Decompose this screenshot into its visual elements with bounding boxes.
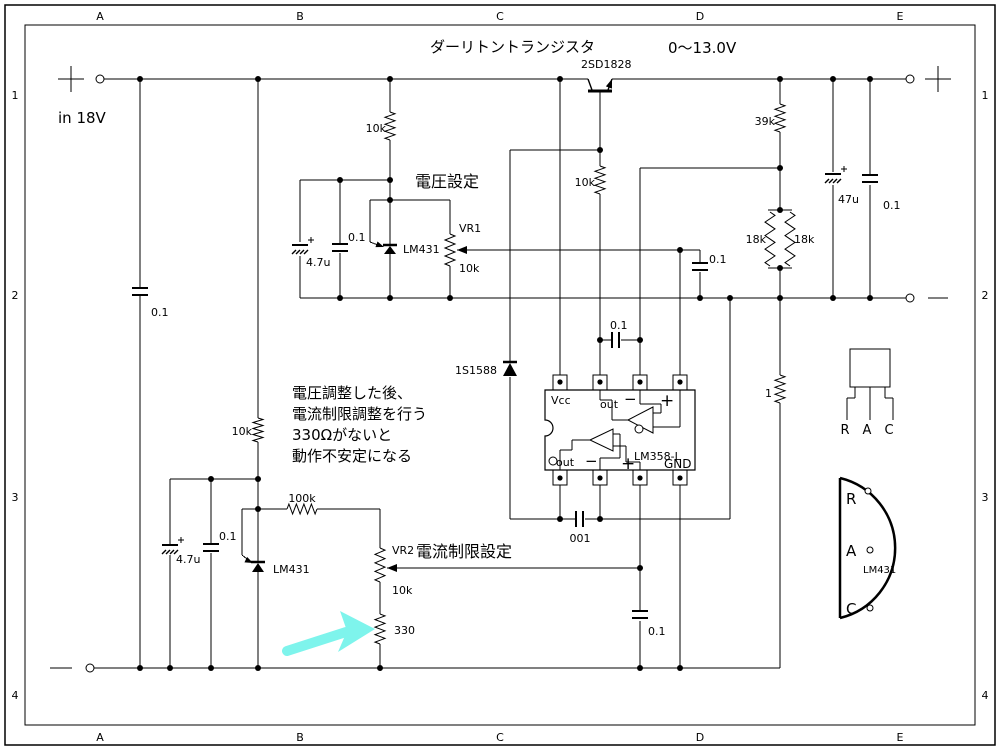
- cap-001: [576, 511, 583, 527]
- label-note-3: 330Ωがないと: [292, 426, 392, 444]
- grid-col-label-B-top: B: [296, 10, 304, 23]
- label-title: ダーリトントランジスタ: [430, 38, 595, 56]
- label-pkg-c: C: [884, 423, 893, 438]
- label-c-ref-01: 0.1: [648, 625, 666, 638]
- label-dpkg-c: C: [846, 600, 856, 618]
- diode-1s1588: [503, 362, 517, 376]
- grid-row-label-3-right: 3: [982, 491, 989, 504]
- label-ic-vcc: Vcc: [551, 394, 571, 407]
- lm431-vset: [375, 241, 397, 254]
- label-d-1s1588: 1S1588: [455, 364, 497, 377]
- grid-col-label-A-top: A: [96, 10, 104, 23]
- cap-vset-4.7u: [292, 237, 314, 254]
- cap-out-0.1: [862, 175, 878, 182]
- junction-ring: [635, 425, 643, 433]
- vr2-wiper: [387, 564, 397, 572]
- label-ic-plus-top: +: [660, 391, 674, 411]
- resistor-330: [375, 614, 385, 644]
- input-plus-terminal: [96, 75, 104, 83]
- label-r-39k: 39k: [755, 115, 776, 128]
- schematic-canvas: AABBCCDDEE11223344in 18Vダーリトントランジスタ0〜13.…: [0, 0, 1000, 750]
- dpkg-pin-c: [867, 605, 873, 611]
- grid-row-label-2-left: 2: [12, 289, 19, 302]
- grid-col-label-A-bottom: A: [96, 731, 104, 744]
- grid-row-label-3-left: 3: [12, 491, 19, 504]
- grid-col-label-E-bottom: E: [897, 731, 904, 744]
- label-r-base-10k: 10k: [575, 176, 596, 189]
- resistor-vset-10k: [385, 112, 395, 140]
- label-note-2: 電流制限調整を行う: [292, 405, 427, 423]
- label-heading-vset: 電圧設定: [415, 172, 479, 191]
- label-c-out-01: 0.1: [883, 199, 901, 212]
- label-c-in-01: 0.1: [151, 306, 169, 319]
- cap-ilim-4.7u: [162, 537, 184, 554]
- resistor-1ohm: [775, 375, 785, 403]
- label-r-330: 330: [394, 624, 415, 637]
- cap-vset-0.1: [332, 244, 348, 251]
- lm431-ilim: [244, 557, 265, 572]
- label-ic-minus-bot: −: [585, 452, 598, 470]
- schematic-sheet: AABBCCDDEE11223344in 18Vダーリトントランジスタ0〜13.…: [0, 0, 1000, 750]
- cap-out-47u: [825, 166, 847, 183]
- label-c-ilim-47u: 4.7u: [176, 553, 200, 566]
- label-r-18k-l: 18k: [746, 233, 767, 246]
- output-minus-terminal: [906, 294, 914, 302]
- label-heading-ilim: 電流制限設定: [416, 542, 512, 561]
- label-r-18k-r: 18k: [794, 233, 815, 246]
- cap-comp-0.1: [612, 332, 619, 348]
- grid-row-label-4-left: 4: [12, 689, 19, 702]
- label-vr2: VR2: [392, 544, 414, 557]
- label-vr2-val: 10k: [392, 584, 413, 597]
- resistor-100k: [287, 504, 317, 514]
- grid-col-label-B-bottom: B: [296, 731, 304, 744]
- vr2-element: [375, 548, 385, 582]
- resistor-base-10k: [595, 166, 605, 194]
- label-ic-out-bot: out: [556, 456, 575, 469]
- ground-terminal: [86, 664, 94, 672]
- dpkg-pin-a: [867, 547, 873, 553]
- grid-row-label-4-right: 4: [982, 689, 989, 702]
- cap-ref-0.1: [632, 611, 648, 618]
- vr1-wiper: [457, 246, 467, 254]
- grid-col-label-E-top: E: [897, 10, 904, 23]
- label-input-voltage: in 18V: [58, 109, 107, 127]
- transistor-2sd1828: [588, 79, 612, 91]
- dpkg-pin-r: [865, 488, 871, 494]
- label-output-range: 0〜13.0V: [668, 39, 737, 57]
- sheet-border: [5, 5, 995, 745]
- grid-labels: AABBCCDDEE11223344: [12, 10, 989, 744]
- grid-col-label-C-top: C: [496, 10, 504, 23]
- label-ic-out-top: out: [600, 398, 619, 411]
- text-labels: in 18Vダーリトントランジスタ0〜13.0V2SD182810k電圧設定39…: [58, 38, 901, 638]
- grid-col-label-D-top: D: [696, 10, 704, 23]
- resistor-39k: [775, 104, 785, 132]
- grid-row-label-1-right: 1: [982, 89, 989, 102]
- grid-col-label-C-bottom: C: [496, 731, 504, 744]
- grid-row-label-2-right: 2: [982, 289, 989, 302]
- label-pkg-r: R: [840, 423, 849, 438]
- label-c-vset-47u: 4.7u: [306, 256, 330, 269]
- label-note-1: 電圧調整した後、: [292, 384, 412, 402]
- label-c-comp-01: 0.1: [610, 319, 628, 332]
- label-dpkg-r: R: [846, 490, 856, 508]
- grid-row-label-1-left: 1: [12, 89, 19, 102]
- highlight-arrow: [287, 611, 375, 652]
- label-pkg-a: A: [863, 423, 872, 438]
- label-u-ilim-lm431: LM431: [273, 563, 310, 576]
- label-c-out-47u: 47u: [838, 193, 859, 206]
- label-vr1-val: 10k: [459, 262, 480, 275]
- label-vr1: VR1: [459, 222, 481, 235]
- cap-fb-0.1: [692, 263, 708, 270]
- label-note-4: 動作不安定になる: [292, 447, 412, 465]
- resistor-ilim-10k: [253, 418, 263, 442]
- wire-segments: [50, 66, 951, 668]
- cap-ilim-0.1: [203, 544, 219, 551]
- label-c-001: 001: [570, 532, 591, 545]
- cap-input-0.1: [132, 288, 148, 295]
- grid-col-label-D-bottom: D: [696, 731, 704, 744]
- resistor-18k-left: [765, 212, 775, 266]
- label-u-vset-lm431: LM431: [403, 243, 440, 256]
- vr1-element: [445, 234, 455, 266]
- label-r-vset-10k: 10k: [366, 122, 387, 135]
- output-plus-terminal: [906, 75, 914, 83]
- label-c-vset-01: 0.1: [348, 231, 366, 244]
- label-ic-gnd: GND: [664, 457, 692, 471]
- label-dpkg-a: A: [846, 542, 857, 560]
- to92-package: [850, 349, 890, 387]
- label-q1: 2SD1828: [581, 58, 631, 71]
- label-r-1: 1: [765, 387, 772, 400]
- label-dpkg-part: LM431: [863, 565, 896, 576]
- label-c-fb-01: 0.1: [709, 253, 727, 266]
- label-c-ilim-01: 0.1: [219, 530, 237, 543]
- label-r-100k: 100k: [288, 492, 316, 505]
- label-ic-minus-top: −: [624, 390, 637, 408]
- label-r-ilim-10k: 10k: [232, 425, 253, 438]
